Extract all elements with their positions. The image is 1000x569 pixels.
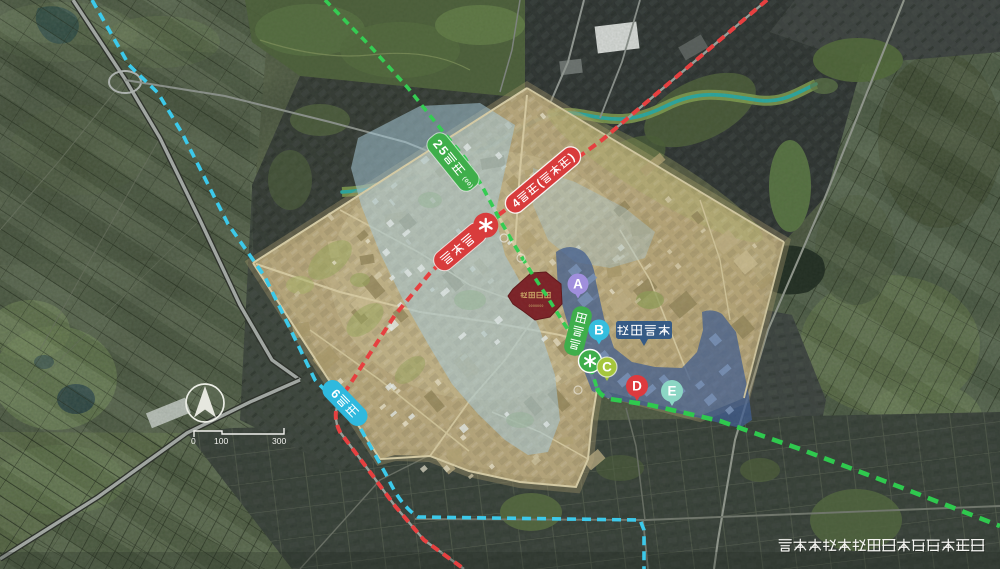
svg-text:B: B [594,323,604,338]
svg-text:A: A [573,277,583,292]
svg-text:C: C [602,360,612,375]
svg-text:0: 0 [191,436,196,446]
svg-text:E: E [667,384,676,399]
svg-text:D: D [632,379,642,394]
svg-text:300: 300 [272,436,286,446]
svg-text:100: 100 [214,436,228,446]
